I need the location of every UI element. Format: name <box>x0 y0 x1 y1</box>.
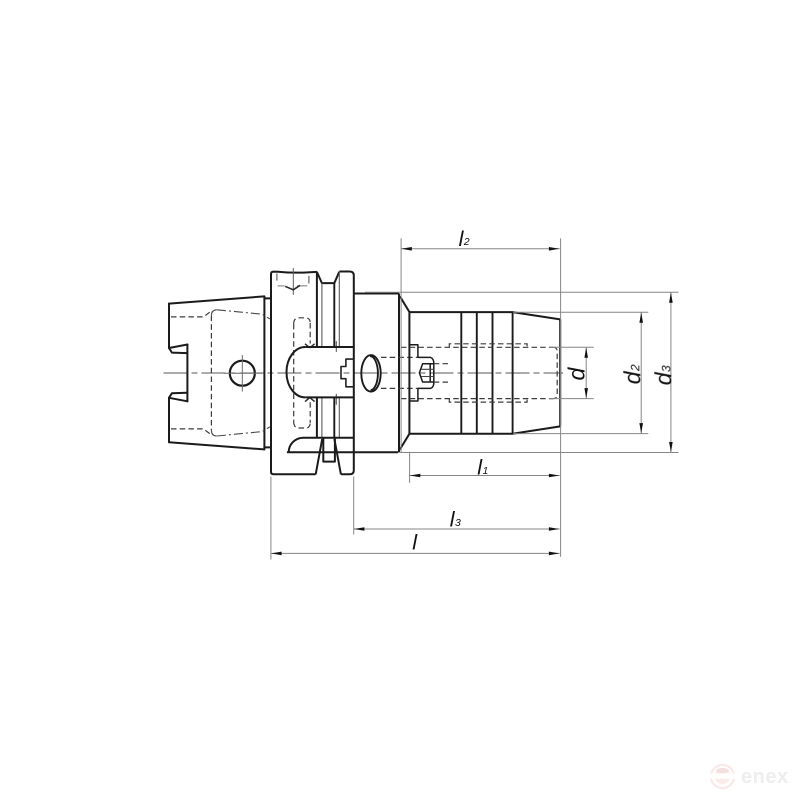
svg-text:d2: d2 <box>619 364 645 384</box>
svg-text:l1: l1 <box>477 456 488 480</box>
svg-text:l2: l2 <box>459 227 470 251</box>
svg-text:d3: d3 <box>650 365 676 385</box>
svg-text:l3: l3 <box>450 508 461 532</box>
svg-text:l: l <box>412 531 418 555</box>
svg-text:enex: enex <box>741 766 789 788</box>
svg-text:d: d <box>564 367 590 381</box>
